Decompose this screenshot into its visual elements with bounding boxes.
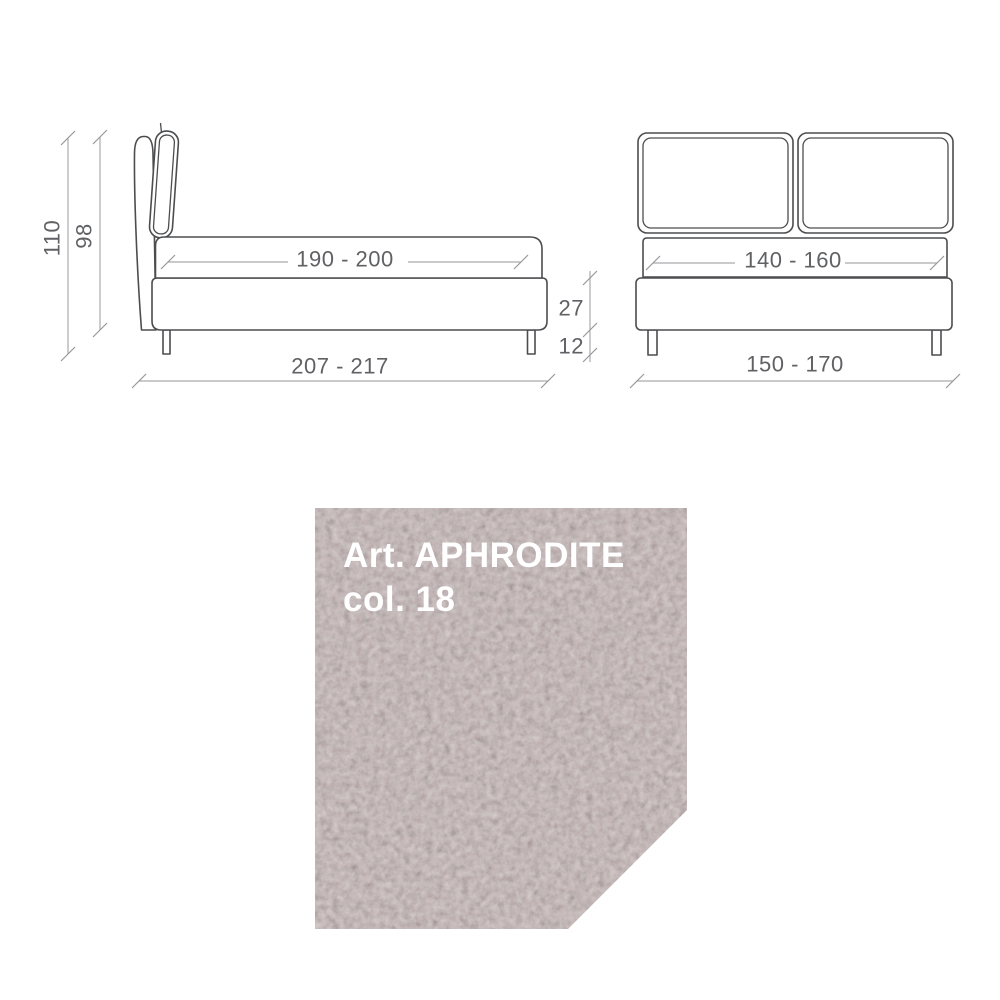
dim-label-total-width: 150 - 170 [746,352,843,377]
headboard-cushion-right [798,133,953,233]
spec-sheet: 110 98 190 - 200 [0,0,1000,1000]
front-leg [163,330,170,354]
dim-headboard-height: 98 [72,130,108,337]
bed-side-view: 110 98 190 - 200 [40,123,598,388]
right-leg [932,330,941,355]
dim-label-sleep-width: 140 - 160 [744,248,841,273]
bed-frame-side [152,278,547,330]
dim-label-total-length: 207 - 217 [291,354,388,379]
dim-label-frame-height: 27 [559,296,584,321]
dim-label-headboard-height: 98 [72,223,97,248]
bed-frame-front [636,278,952,330]
dim-total-length: 207 - 217 [132,354,555,389]
dim-total-height: 110 [40,131,76,361]
dim-total-width: 150 - 170 [630,352,960,389]
dimension-diagrams: 110 98 190 - 200 [0,0,1000,460]
fabric-article-name: Art. APHRODITE [343,534,625,578]
fabric-color-number: col. 18 [343,578,625,622]
left-leg [648,330,657,355]
dim-label-leg-height: 12 [559,334,584,359]
dim-frame-and-legs: 27 12 [559,271,597,362]
cushion-outer [798,133,953,233]
headboard-cushion-side [149,130,179,238]
dim-label-total-height: 110 [40,220,65,257]
headboard-cushion-left [638,133,793,233]
fabric-label: Art. APHRODITE col. 18 [343,534,625,622]
bed-front-view: 140 - 160 150 - 170 [630,133,960,388]
dim-label-sleep-length: 190 - 200 [296,247,393,272]
fabric-swatch: Art. APHRODITE col. 18 [315,508,687,929]
cushion-outer [638,133,793,233]
rear-leg [528,330,536,354]
